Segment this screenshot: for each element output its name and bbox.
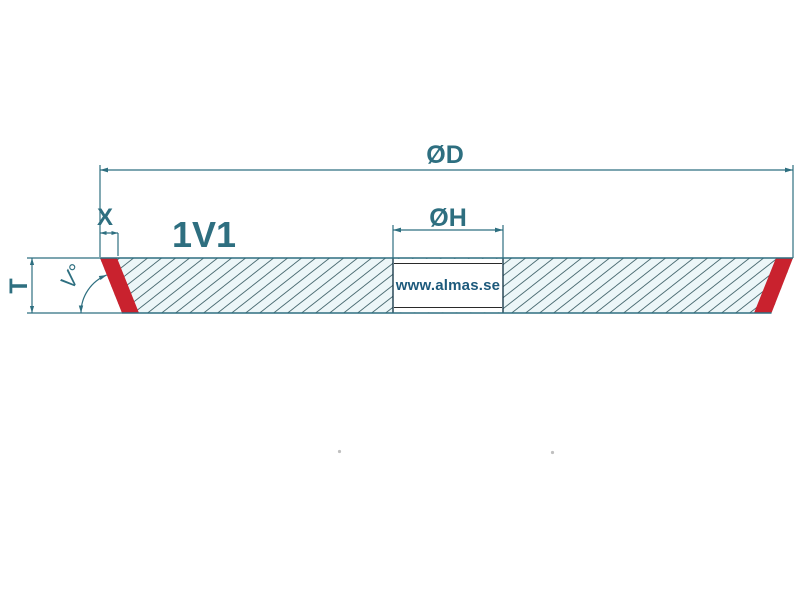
profile-code-label: 1V1 bbox=[167, 217, 241, 253]
faint-specks bbox=[338, 450, 554, 454]
watermark-text: www.almas.se bbox=[393, 258, 503, 313]
rim-depth-label: X bbox=[85, 206, 125, 230]
diagram-canvas: ØD ØH X 1V1 T V° www.almas.se bbox=[0, 0, 800, 600]
outer-diameter-label: ØD bbox=[410, 143, 480, 168]
thickness-label: T bbox=[7, 258, 33, 314]
bore-diameter-label: ØH bbox=[413, 206, 483, 231]
dimension-rim-depth bbox=[100, 231, 118, 256]
